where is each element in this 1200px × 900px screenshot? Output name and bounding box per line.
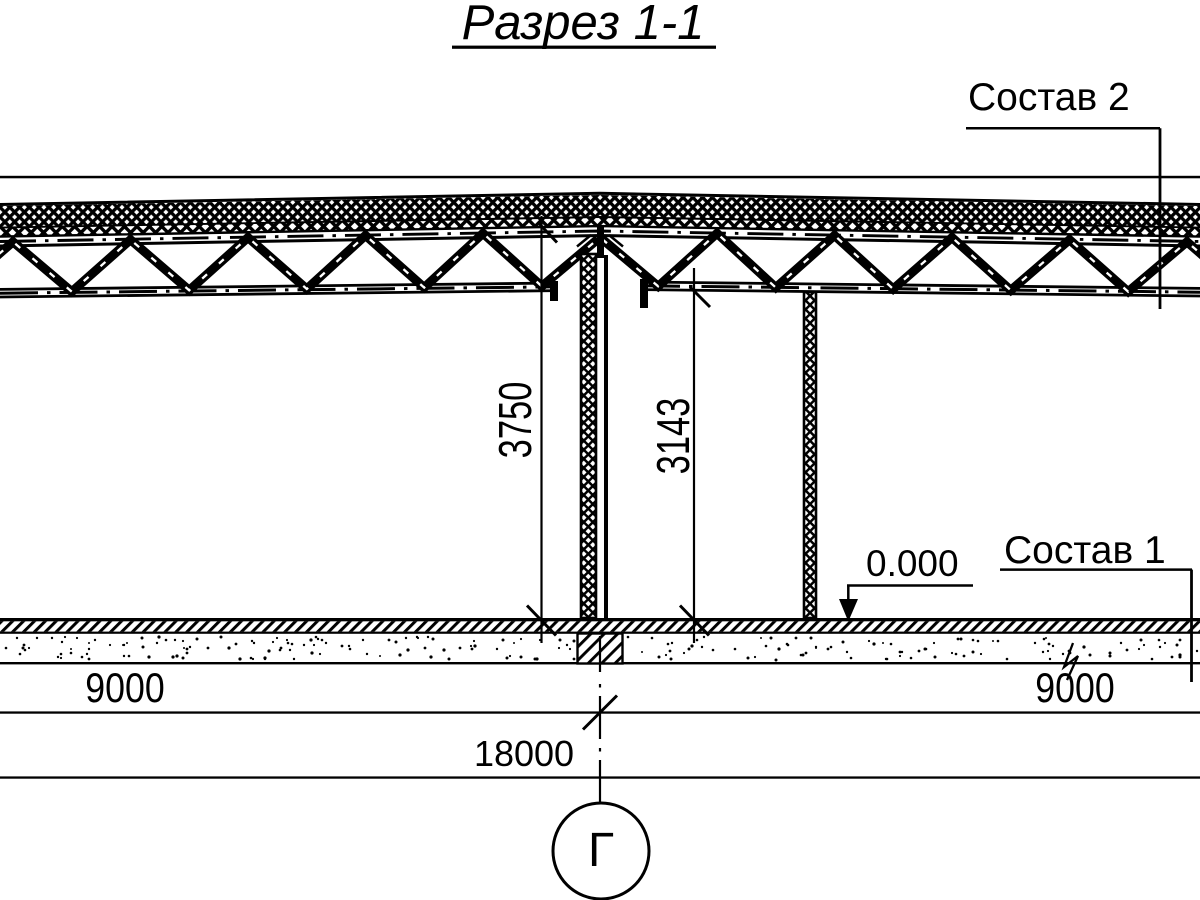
- svg-text:0.000: 0.000: [866, 543, 959, 584]
- svg-text:Состав 1: Состав 1: [1004, 529, 1166, 572]
- svg-text:3143: 3143: [647, 398, 699, 475]
- svg-text:Г: Г: [588, 824, 614, 877]
- svg-text:Состав 2: Состав 2: [968, 76, 1130, 119]
- svg-text:Разрез 1-1: Разрез 1-1: [462, 0, 705, 50]
- svg-text:18000: 18000: [474, 733, 574, 774]
- svg-text:9000: 9000: [85, 665, 164, 711]
- svg-text:3750: 3750: [489, 382, 541, 459]
- svg-text:9000: 9000: [1035, 665, 1114, 711]
